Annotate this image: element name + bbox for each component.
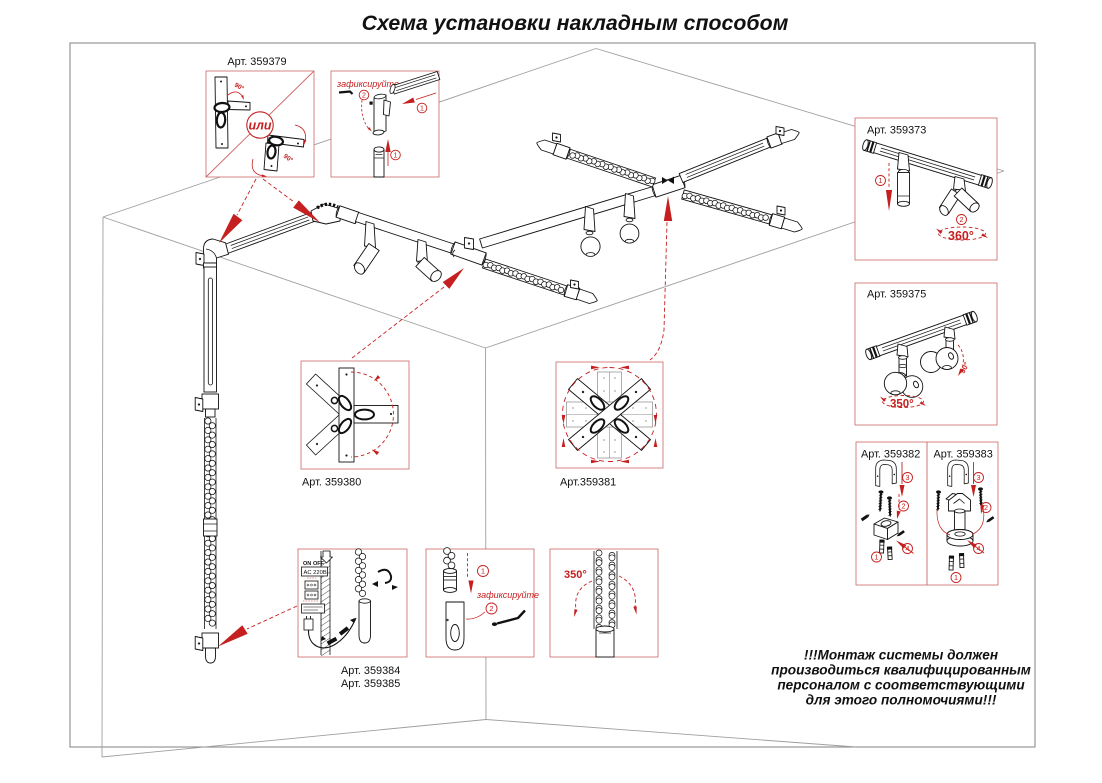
svg-text:2: 2 (960, 215, 964, 224)
svg-text:AC 220В: AC 220В (304, 570, 327, 576)
svg-text:350°: 350° (890, 399, 914, 411)
svg-text:2: 2 (489, 604, 493, 613)
svg-text:зафиксируйте: зафиксируйте (476, 590, 539, 600)
svg-text:Арт. 359384: Арт. 359384 (341, 665, 400, 677)
svg-text:Арт. 359380: Арт. 359380 (302, 477, 361, 489)
svg-text:3: 3 (977, 473, 981, 482)
svg-text:1: 1 (394, 153, 398, 160)
svg-text:3: 3 (906, 473, 910, 482)
svg-text:Арт. 359375: Арт. 359375 (867, 289, 926, 301)
svg-text:Арт.359381: Арт.359381 (560, 477, 616, 489)
svg-text:1: 1 (420, 106, 424, 113)
svg-text:Схема установки накладным спос: Схема установки накладным способом (362, 11, 789, 35)
svg-text:2: 2 (362, 93, 366, 100)
svg-text:Арт. 359383: Арт. 359383 (934, 449, 993, 461)
svg-text:2: 2 (984, 503, 988, 512)
svg-text:для этого полномочиями!!!: для этого полномочиями!!! (806, 693, 997, 708)
svg-text:персоналом с соответствующими: персоналом с соответствующими (777, 678, 1025, 693)
svg-text:Арт. 359379: Арт. 359379 (227, 56, 286, 68)
svg-text:2: 2 (902, 502, 906, 511)
svg-text:Арт. 359385: Арт. 359385 (341, 678, 400, 690)
svg-text:Арт. 359373: Арт. 359373 (867, 125, 926, 137)
svg-text:OFF: OFF (313, 561, 325, 567)
svg-text:360°: 360° (948, 229, 974, 243)
svg-text:1: 1 (875, 553, 879, 562)
svg-text:зафиксируйте: зафиксируйте (336, 79, 399, 89)
svg-text:производиться квалифицированны: производиться квалифицированным (771, 663, 1031, 678)
svg-text:1: 1 (481, 567, 485, 576)
svg-text:350°: 350° (564, 569, 587, 581)
svg-text:1: 1 (954, 573, 958, 582)
svg-text:или: или (248, 119, 271, 133)
svg-text:1: 1 (879, 176, 883, 185)
svg-text:Арт. 359382: Арт. 359382 (861, 449, 920, 461)
svg-text:ON: ON (303, 561, 311, 567)
svg-text:!!!Монтаж системы должен: !!!Монтаж системы должен (804, 648, 998, 663)
